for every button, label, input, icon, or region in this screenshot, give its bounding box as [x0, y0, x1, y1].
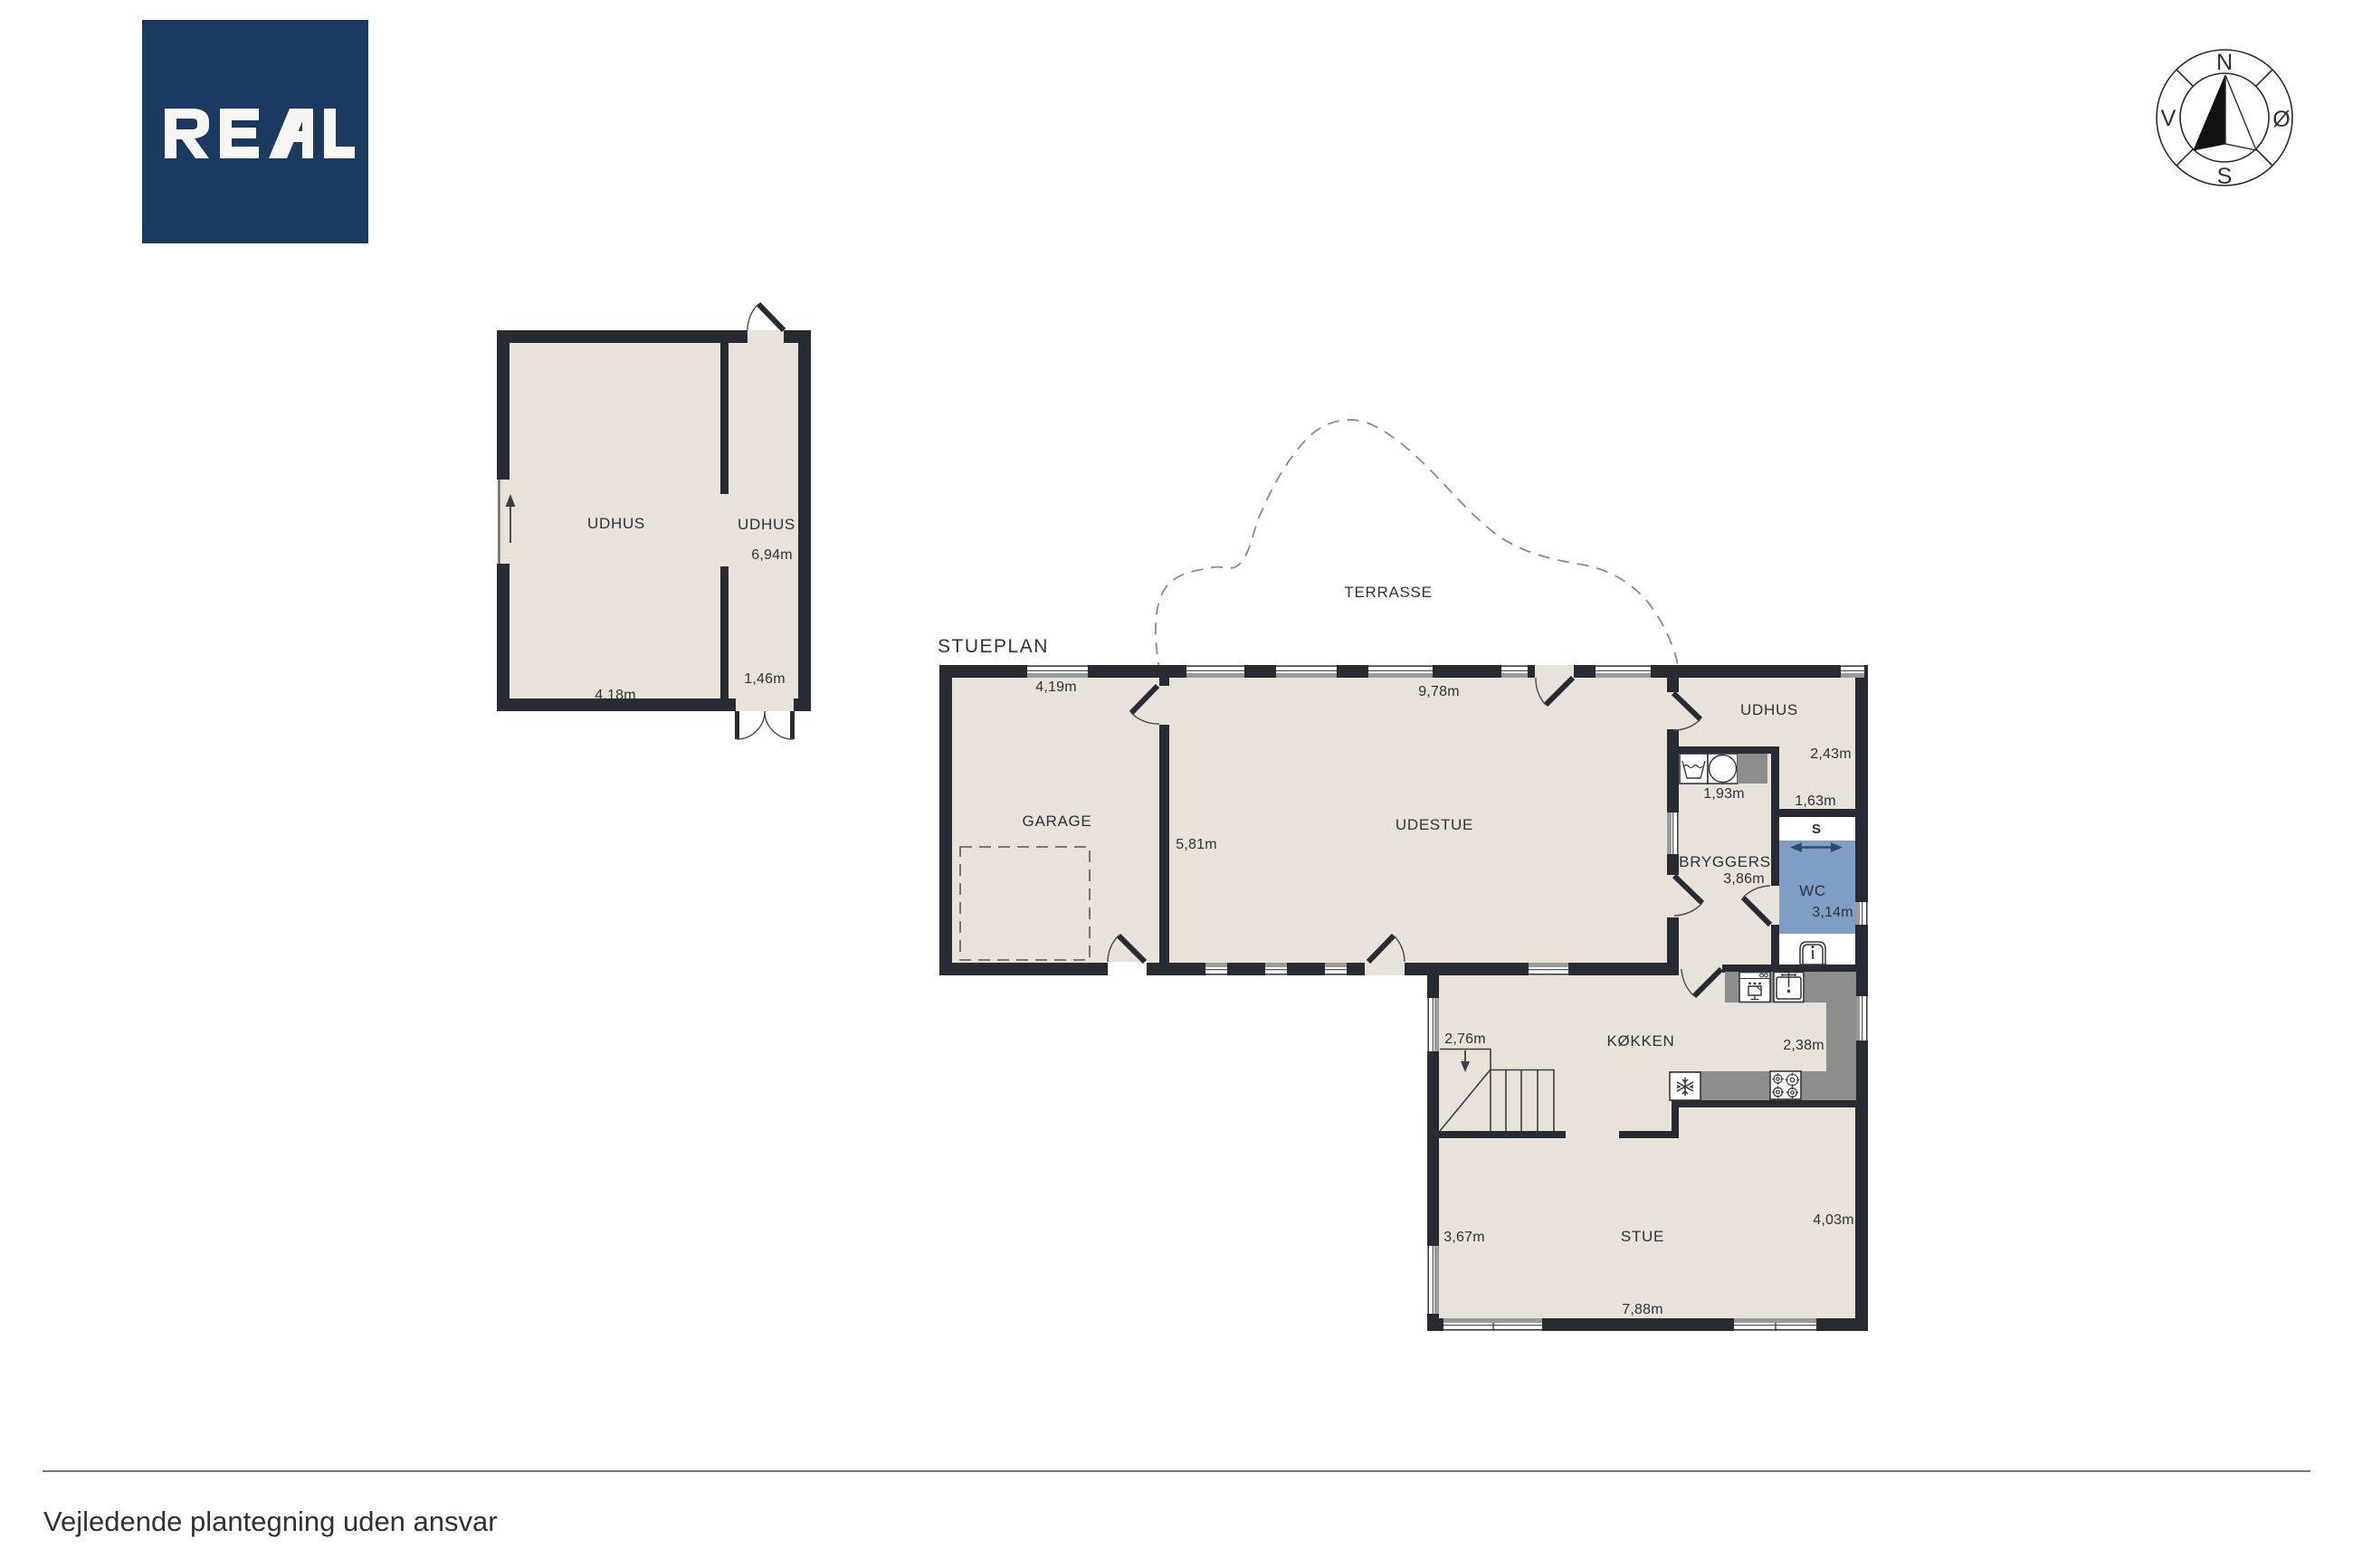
svg-text:STUE: STUE: [1621, 1228, 1664, 1245]
svg-text:3,67m: 3,67m: [1443, 1230, 1484, 1245]
svg-text:7,88m: 7,88m: [1622, 1302, 1662, 1317]
svg-text:S: S: [2217, 164, 2233, 189]
svg-text:STUEPLAN: STUEPLAN: [938, 636, 1049, 657]
svg-text:BRYGGERS: BRYGGERS: [1679, 853, 1771, 870]
svg-text:UDHUS: UDHUS: [1740, 701, 1798, 718]
svg-text:KØKKEN: KØKKEN: [1606, 1032, 1674, 1050]
svg-text:9,78m: 9,78m: [1418, 684, 1459, 699]
svg-text:WC: WC: [1799, 882, 1826, 899]
svg-text:2,43m: 2,43m: [1810, 746, 1851, 762]
svg-text:V: V: [2161, 106, 2177, 131]
svg-text:5,81m: 5,81m: [1176, 837, 1216, 852]
svg-text:4,19m: 4,19m: [1035, 679, 1076, 695]
svg-text:TERRASSE: TERRASSE: [1344, 584, 1432, 601]
svg-text:1,93m: 1,93m: [1703, 786, 1744, 802]
svg-text:Ø: Ø: [2272, 107, 2290, 132]
svg-text:1,46m: 1,46m: [744, 671, 785, 687]
svg-text:3,14m: 3,14m: [1812, 905, 1853, 920]
svg-text:4,18m: 4,18m: [595, 688, 635, 703]
svg-text:S: S: [1812, 822, 1821, 837]
svg-text:Vejledende plantegning uden an: Vejledende plantegning uden ansvar: [43, 1506, 498, 1537]
svg-text:2,76m: 2,76m: [1444, 1031, 1485, 1047]
svg-text:2,38m: 2,38m: [1783, 1038, 1824, 1053]
svg-text:4,03m: 4,03m: [1813, 1212, 1853, 1228]
svg-text:6,94m: 6,94m: [751, 547, 792, 563]
svg-text:1,63m: 1,63m: [1795, 794, 1835, 809]
svg-text:N: N: [2216, 50, 2233, 75]
svg-text:GARAGE: GARAGE: [1023, 813, 1092, 830]
svg-text:UDHUS: UDHUS: [738, 516, 795, 533]
svg-text:UDHUS: UDHUS: [587, 515, 645, 532]
svg-text:UDESTUE: UDESTUE: [1396, 816, 1473, 833]
svg-text:3,86m: 3,86m: [1723, 871, 1764, 887]
